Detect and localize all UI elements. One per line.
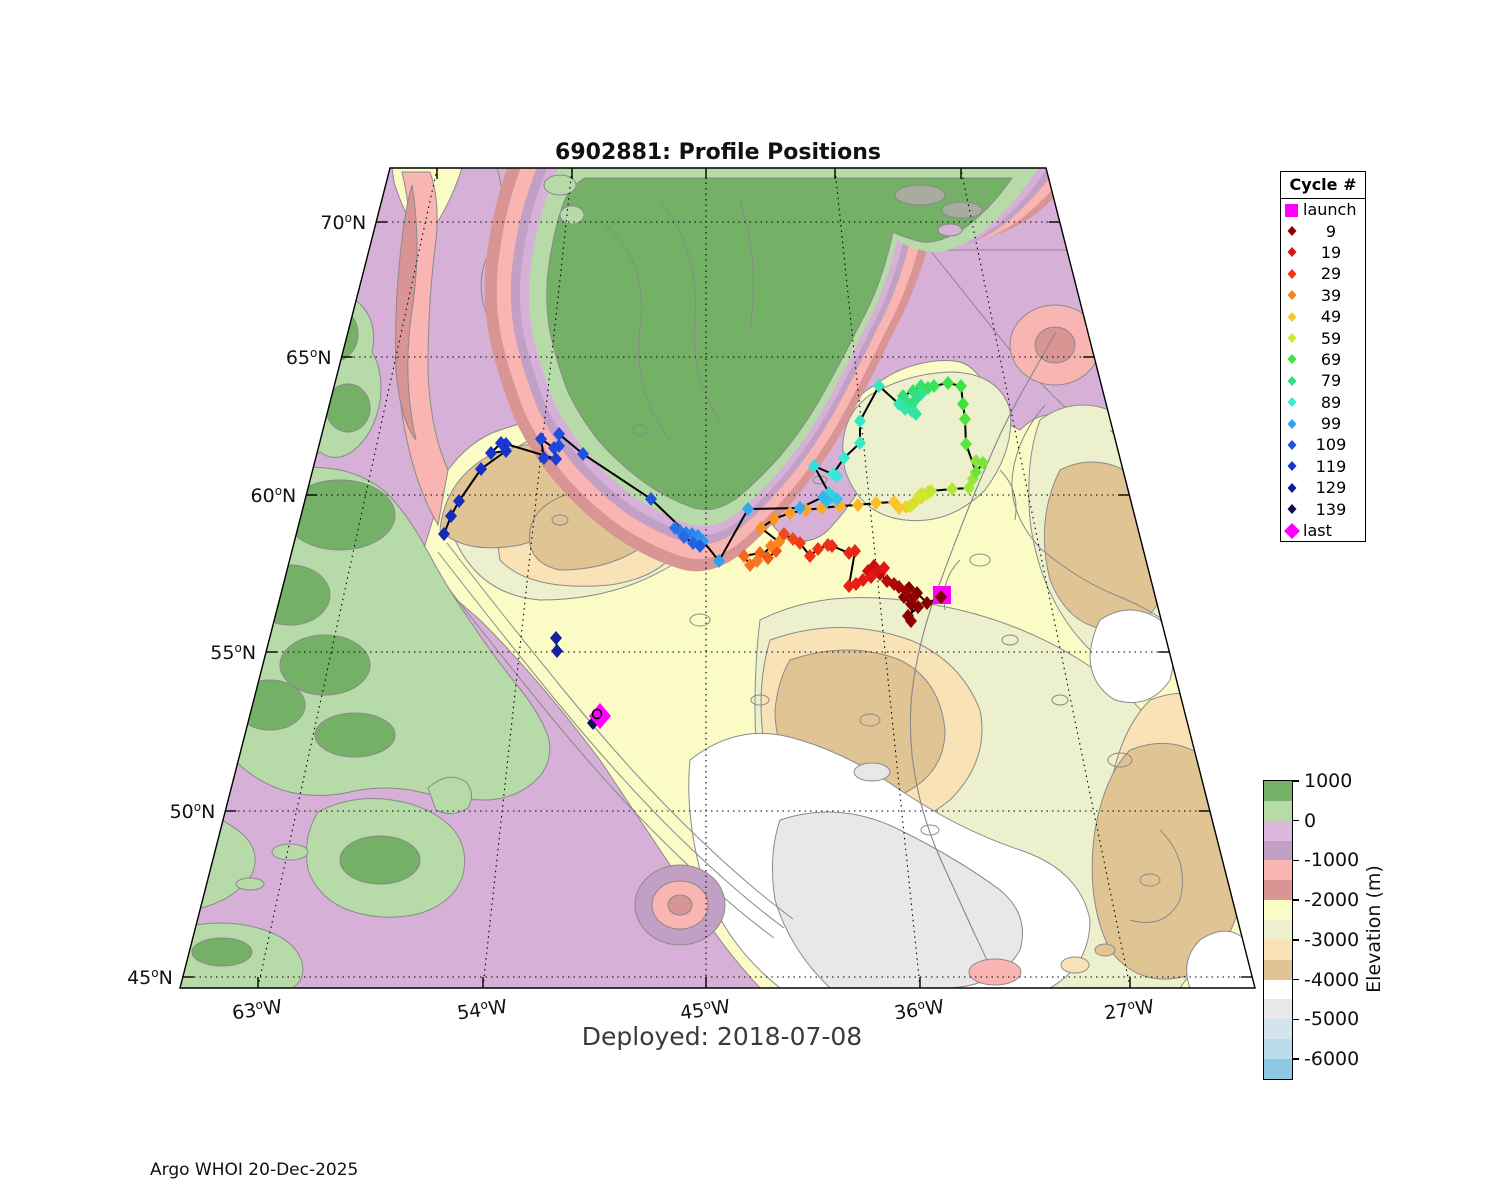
colorbar-tick-label: -4000 <box>1304 969 1359 991</box>
colorbar-tick-label: -3000 <box>1304 929 1359 951</box>
elevation-band <box>1264 860 1292 880</box>
legend-entry-label: 29 <box>1303 264 1365 283</box>
tick-label: 54oW <box>456 995 509 1025</box>
cycle-diamond-icon <box>1281 415 1303 433</box>
colorbar-tick <box>1292 899 1299 901</box>
contour-shape <box>969 959 1021 985</box>
legend-entry-label: 39 <box>1303 286 1365 305</box>
contour-shape <box>942 202 982 218</box>
contour-shape <box>192 938 252 966</box>
elevation-band <box>1264 980 1292 1000</box>
legend-entry: 139 <box>1281 498 1365 519</box>
legend-entry-label: launch <box>1303 200 1365 219</box>
contour-shape <box>544 175 576 195</box>
contour-shape <box>938 224 962 236</box>
cycle-diamond-icon <box>1281 243 1303 261</box>
contour-shape <box>1170 644 1190 656</box>
colorbar-tick <box>1292 979 1299 981</box>
elevation-band <box>1264 960 1292 980</box>
elevation-band <box>1264 940 1292 960</box>
contour-shape <box>1095 944 1115 956</box>
contour-shape <box>235 680 305 730</box>
colorbar-tick <box>1292 1058 1299 1060</box>
legend-entry-label: 129 <box>1303 478 1365 497</box>
contour-shape <box>1090 610 1173 703</box>
contour-shape <box>1044 462 1170 630</box>
cycle-diamond-icon <box>1281 350 1303 368</box>
cycle-diamond-icon <box>1281 329 1303 347</box>
legend-entry: 19 <box>1281 242 1365 263</box>
contour-shape <box>560 206 584 224</box>
elevation-band <box>1264 781 1292 801</box>
colorbar-axis-label: Elevation (m) <box>1363 865 1385 993</box>
legend-entry-label: 69 <box>1303 350 1365 369</box>
legend-entry: 109 <box>1281 434 1365 455</box>
contour-shape <box>315 713 395 757</box>
tick-label: 63oW <box>231 995 284 1025</box>
colorbar-tick <box>1292 820 1299 822</box>
legend-entry-label: 19 <box>1303 243 1365 262</box>
elevation-band <box>1264 999 1292 1019</box>
cycle-legend: Cycle # launch91929394959697989991091191… <box>1280 171 1366 542</box>
tick-label: 45oW <box>679 995 732 1025</box>
elevation-band <box>1264 1059 1292 1079</box>
colorbar-tick-label: -2000 <box>1304 889 1359 911</box>
tick-label: 65oN <box>286 346 332 369</box>
contour-shape <box>272 844 308 860</box>
legend-entry: 119 <box>1281 456 1365 477</box>
cycle-diamond-icon <box>1281 308 1303 326</box>
elevation-colorbar <box>1263 780 1293 1080</box>
legend-entry: 9 <box>1281 220 1365 241</box>
legend-entry: 89 <box>1281 392 1365 413</box>
colorbar-tick <box>1292 1019 1299 1021</box>
legend-entry: 39 <box>1281 285 1365 306</box>
elevation-band <box>1264 801 1292 821</box>
cycle-diamond-icon <box>1281 286 1303 304</box>
legend-entry-label: 59 <box>1303 329 1365 348</box>
legend-entry: launch <box>1281 199 1365 220</box>
tick-label: 50oN <box>170 800 216 823</box>
cycle-diamond-icon <box>1281 457 1303 475</box>
legend-entry-label: 109 <box>1303 435 1365 454</box>
legend-entry-label: 99 <box>1303 414 1365 433</box>
cycle-diamond-icon <box>1281 265 1303 283</box>
colorbar-tick-label: -5000 <box>1304 1008 1359 1030</box>
legend-entry: 129 <box>1281 477 1365 498</box>
legend-entry-label: 119 <box>1303 457 1365 476</box>
legend-entry: 49 <box>1281 306 1365 327</box>
launch-swatch-icon <box>1281 201 1303 219</box>
elevation-band <box>1264 920 1292 940</box>
cycle-diamond-icon <box>1281 479 1303 497</box>
cycle-diamond-icon <box>1281 372 1303 390</box>
contour-shape <box>282 294 381 458</box>
legend-entry-label: 89 <box>1303 393 1365 412</box>
contour-shape <box>1061 957 1089 973</box>
legend-entry-label: 139 <box>1303 500 1365 519</box>
legend-title: Cycle # <box>1281 172 1365 199</box>
legend-entry-label: last <box>1303 521 1365 540</box>
contour-shape <box>854 763 890 781</box>
elevation-band <box>1264 880 1292 900</box>
colorbar-tick-label: 0 <box>1304 810 1316 832</box>
colorbar-tick <box>1292 860 1299 862</box>
contour-shape <box>1202 695 1218 705</box>
tick-label: 27oW <box>1103 995 1156 1025</box>
cycle-diamond-icon <box>1281 393 1303 411</box>
footer-credit: Argo WHOI 20-Dec-2025 <box>150 1160 358 1180</box>
tick-label: 36oW <box>893 995 946 1025</box>
elevation-band <box>1264 1019 1292 1039</box>
elevation-band <box>1264 821 1292 841</box>
tick-label: 45oN <box>127 966 173 989</box>
page: 6902881: Profile Positions <box>0 0 1500 1200</box>
contour-shape <box>236 878 264 890</box>
legend-entry-label: 9 <box>1303 222 1365 241</box>
colorbar-tick-label: 1000 <box>1304 770 1352 792</box>
tick-label: 60oN <box>251 484 297 507</box>
tick-label: 55oN <box>210 641 256 664</box>
legend-entry: last <box>1281 520 1365 541</box>
contour-shape <box>668 895 692 915</box>
elevation-band <box>1264 1039 1292 1059</box>
colorbar-tick <box>1292 780 1299 782</box>
contour-shape <box>895 185 945 205</box>
contour-shape <box>250 565 330 625</box>
legend-entry: 79 <box>1281 370 1365 391</box>
colorbar-tick-label: -6000 <box>1304 1048 1359 1070</box>
elevation-band <box>1264 841 1292 861</box>
cycle-diamond-icon <box>1281 222 1303 240</box>
legend-entry: 99 <box>1281 413 1365 434</box>
colorbar-tick <box>1292 939 1299 941</box>
legend-entry-label: 79 <box>1303 371 1365 390</box>
legend-entry: 59 <box>1281 327 1365 348</box>
deployed-date: Deployed: 2018-07-08 <box>582 1022 862 1051</box>
cycle-diamond-icon <box>1281 500 1303 518</box>
elevation-band <box>1264 900 1292 920</box>
legend-entry: 69 <box>1281 349 1365 370</box>
cycle-diamond-icon <box>1281 436 1303 454</box>
legend-entry-label: 49 <box>1303 307 1365 326</box>
cycle-diamond-icon <box>1281 522 1303 540</box>
contour-shape <box>340 836 420 884</box>
colorbar-tick-label: -1000 <box>1304 849 1359 871</box>
legend-entry: 29 <box>1281 263 1365 284</box>
tick-label: 70oN <box>320 211 366 234</box>
